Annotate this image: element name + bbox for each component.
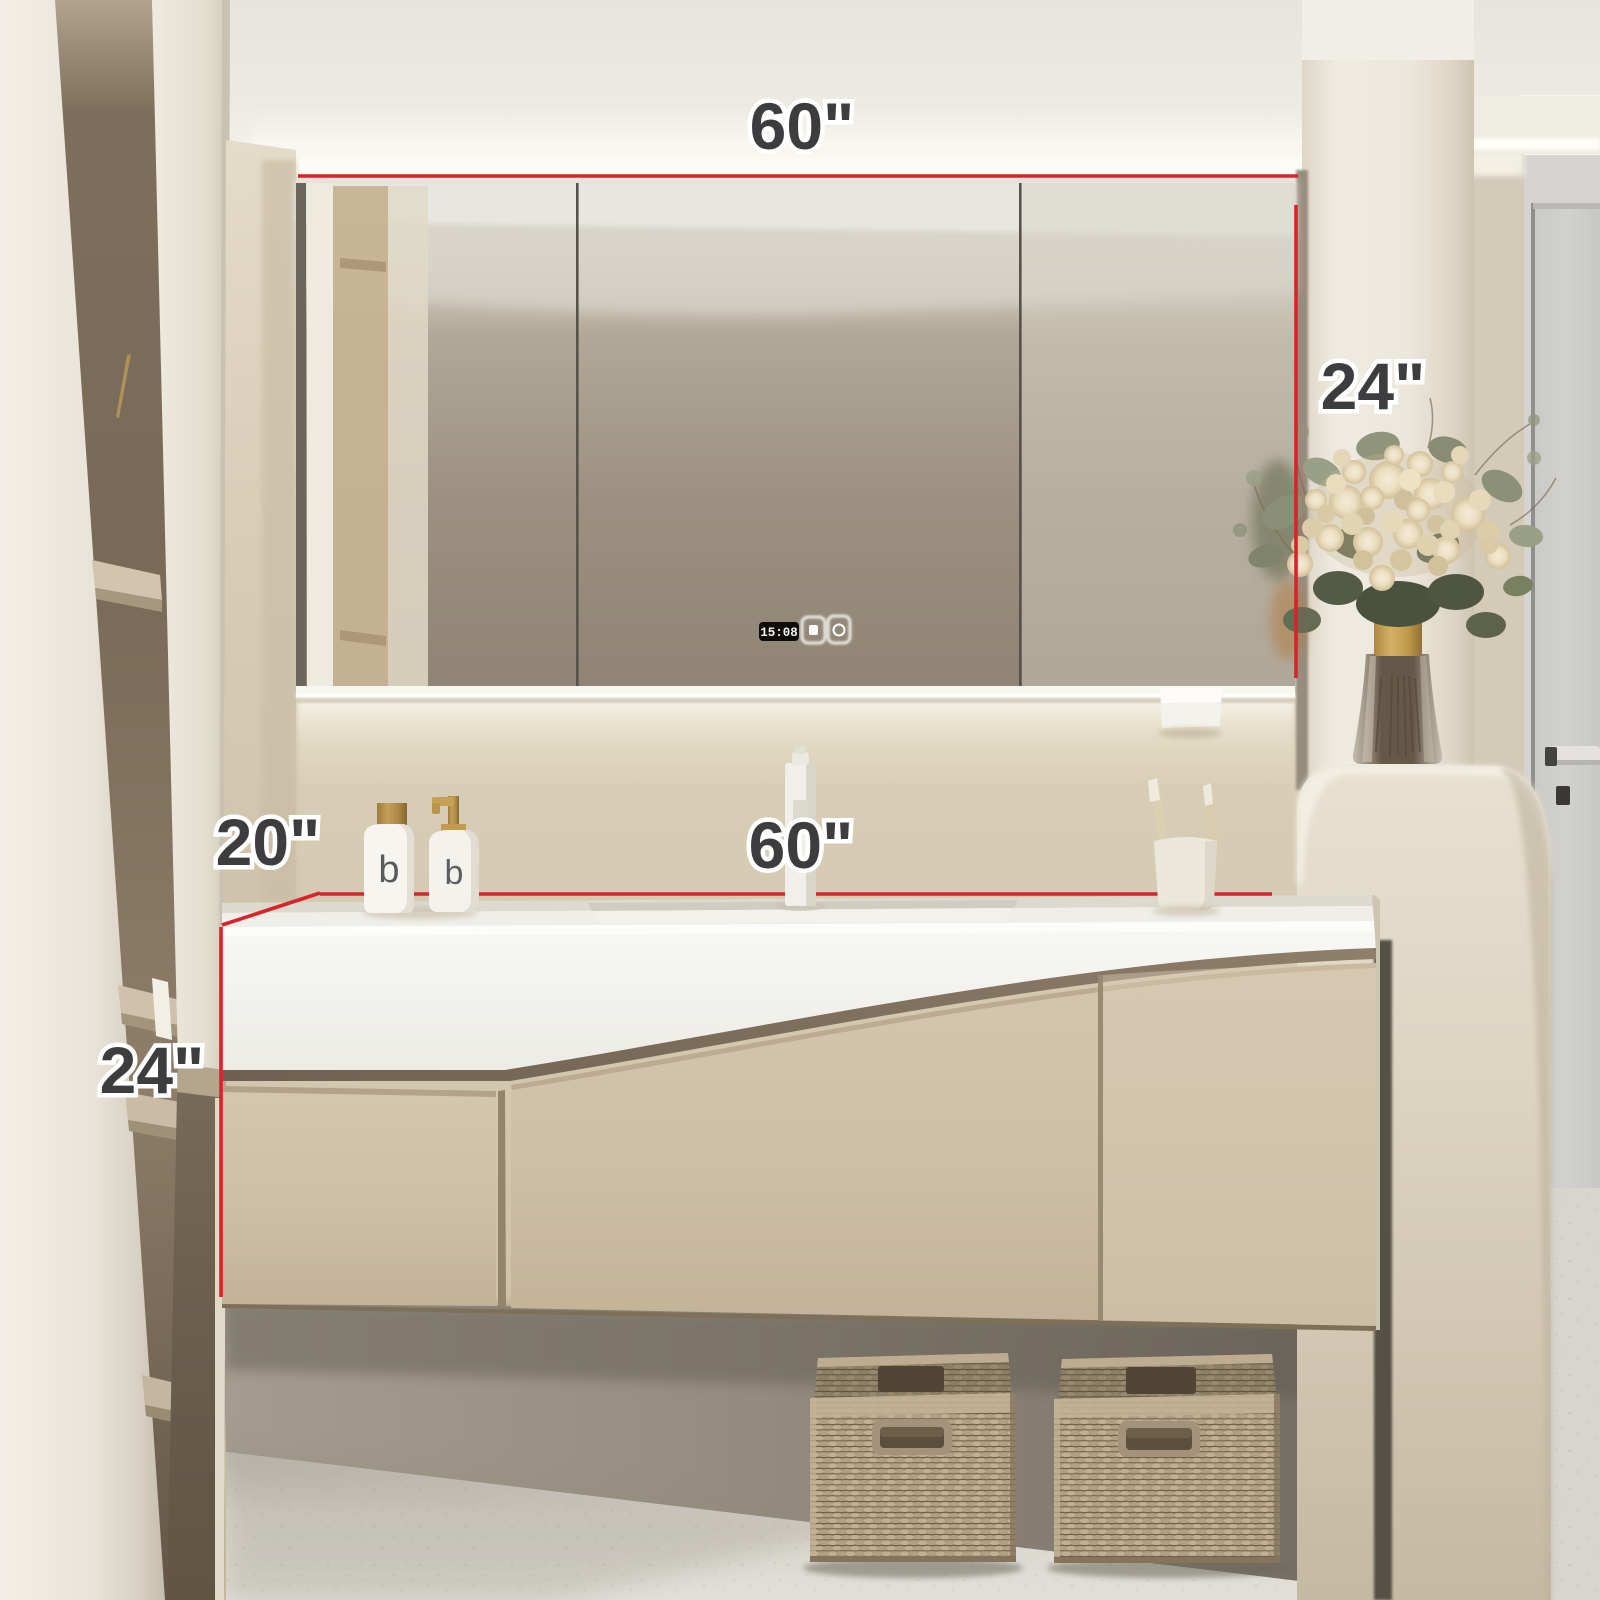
svg-text:24": 24" — [1321, 349, 1426, 423]
svg-text:b: b — [445, 854, 464, 892]
svg-text:60": 60" — [750, 89, 855, 163]
svg-text:60": 60" — [749, 808, 854, 882]
svg-text:24": 24" — [100, 1033, 205, 1107]
svg-text:b: b — [378, 849, 399, 891]
svg-text:20": 20" — [216, 805, 321, 879]
svg-text:15:08: 15:08 — [760, 626, 798, 640]
